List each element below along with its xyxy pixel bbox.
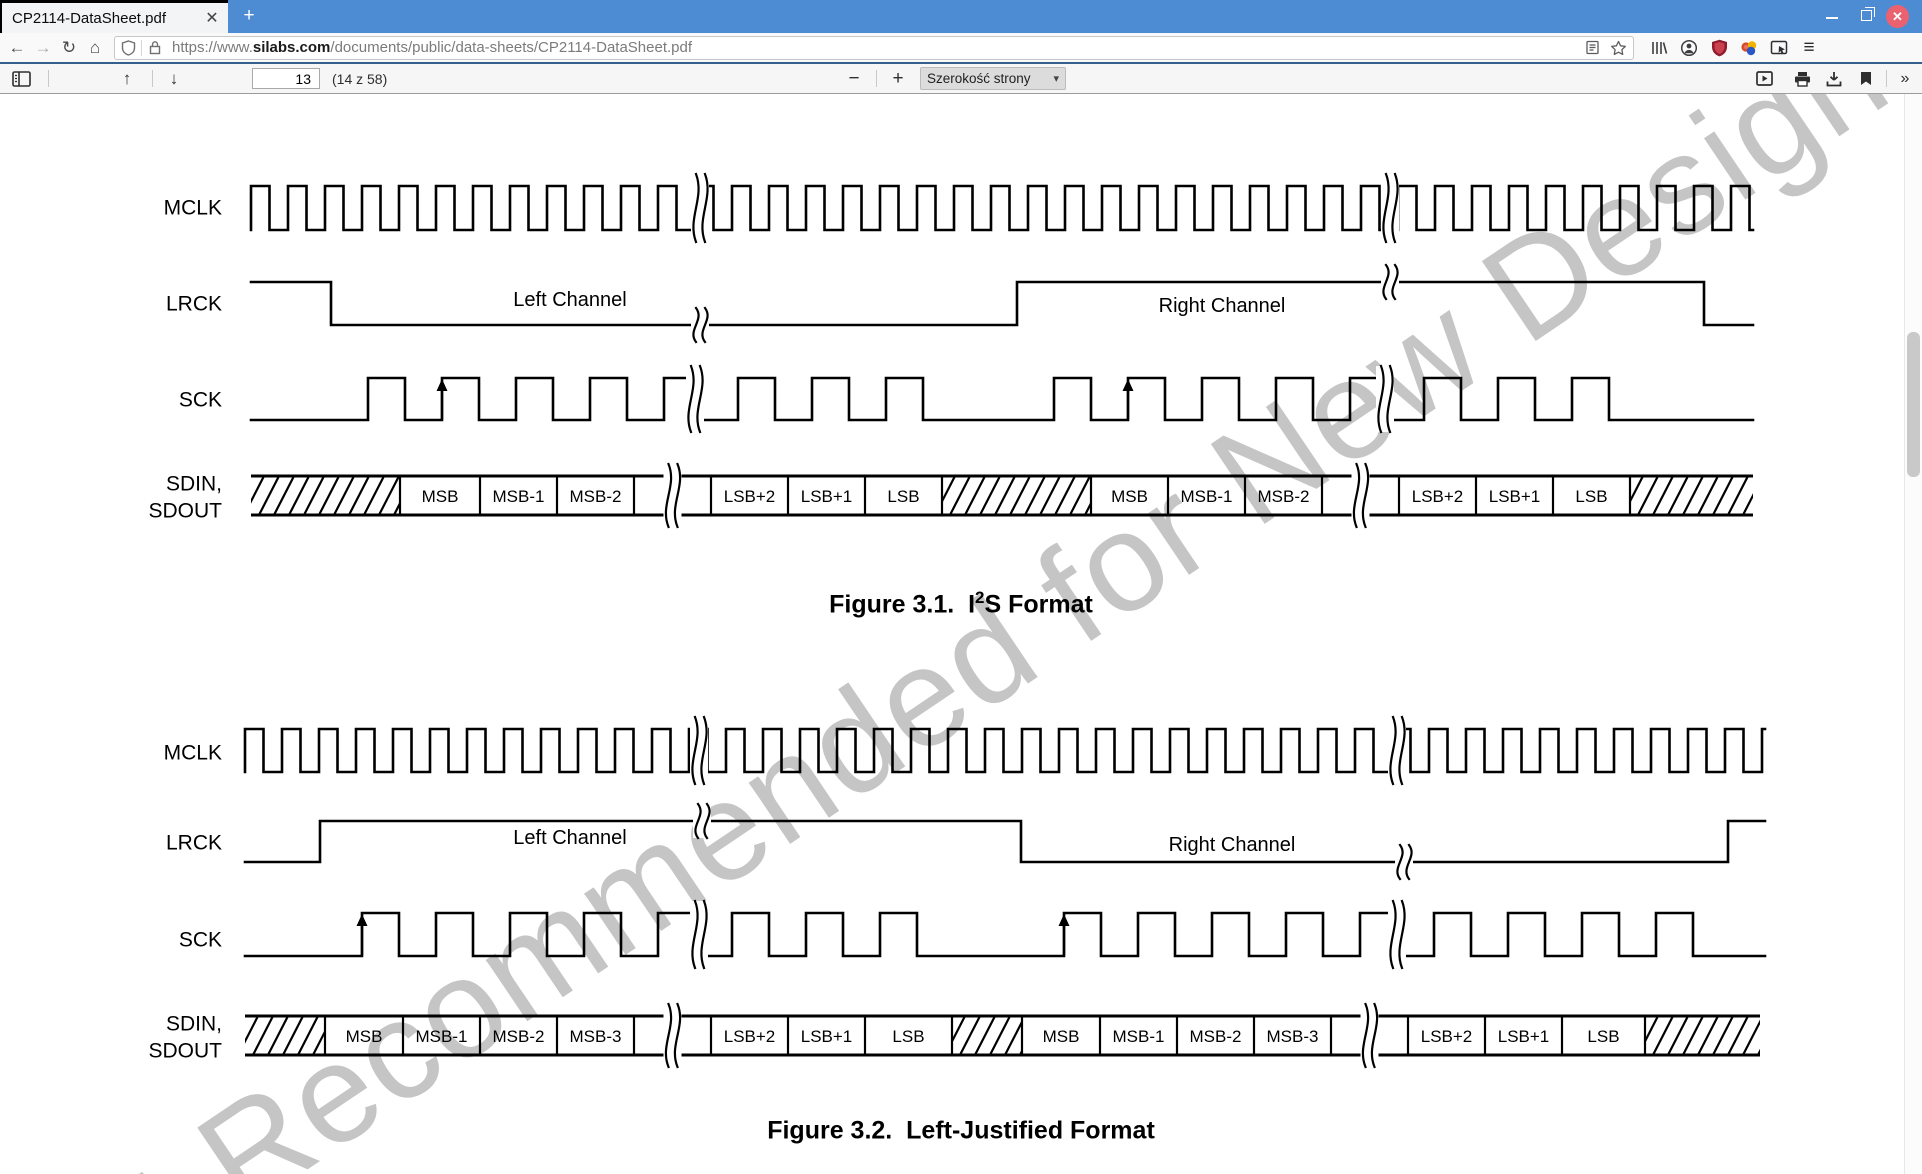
signal-label-mclk: MCLK <box>164 197 222 220</box>
data-cell-label: MSB-2 <box>1258 487 1310 506</box>
data-cell-label: MSB-1 <box>1113 1027 1165 1046</box>
data-cell-label: MSB-2 <box>493 1027 545 1046</box>
page-count-label: (14 z 58) <box>332 71 387 87</box>
pdf-page: Not Recommended for New Designs MCLKLRCK… <box>0 94 1922 1174</box>
lock-icon[interactable] <box>142 37 168 59</box>
data-cell-label: MSB-2 <box>1190 1027 1242 1046</box>
data-cell-label: MSB-2 <box>570 487 622 506</box>
figure-3-2-caption: Figure 3.2. Left-Justified Format <box>0 1114 1922 1145</box>
data-cell-label: LSB+2 <box>724 487 776 506</box>
previous-page-button[interactable]: ↑ <box>113 64 141 93</box>
data-cell-label: LSB+1 <box>1498 1027 1550 1046</box>
url-domain: silabs.com <box>253 39 331 56</box>
browser-tab[interactable]: CP2114-DataSheet.pdf ✕ <box>2 0 228 33</box>
data-cell-label: LSB <box>1587 1027 1619 1046</box>
data-cell-label: LSB+1 <box>1489 487 1541 506</box>
forward-button[interactable]: → <box>30 36 56 60</box>
data-cell-label: MSB-3 <box>570 1027 622 1046</box>
data-cell-label: MSB-3 <box>1267 1027 1319 1046</box>
bookmark-current-view-icon[interactable] <box>1852 64 1880 93</box>
zoom-select[interactable]: Szerokość strony ▾ <box>920 67 1066 90</box>
toolbar-separator <box>1886 70 1887 87</box>
data-cell-label: LSB <box>887 487 919 506</box>
title-bar: CP2114-DataSheet.pdf ✕ + ✕ <box>0 0 1922 33</box>
ublock-shield-icon[interactable] <box>1704 36 1734 60</box>
data-cell-label: LSB+1 <box>801 487 853 506</box>
signal-label-sdin: SDIN, <box>166 1013 222 1036</box>
data-cell-label: MSB-1 <box>416 1027 468 1046</box>
pdf-toolbar: ↑ ↓ (14 z 58) − + Szerokość strony ▾ » <box>0 64 1922 94</box>
back-button[interactable]: ← <box>4 36 30 60</box>
data-cell-label: MSB <box>422 487 459 506</box>
navbar-right-icons: ≡ <box>1644 36 1824 60</box>
new-tab-button[interactable]: + <box>236 3 262 29</box>
page-tools-icon[interactable] <box>1764 36 1794 60</box>
library-icon[interactable] <box>1644 36 1674 60</box>
home-button[interactable]: ⌂ <box>82 36 108 60</box>
data-cell-label: LSB+2 <box>1412 487 1464 506</box>
data-cell-label: LSB+2 <box>724 1027 776 1046</box>
download-icon[interactable] <box>1820 64 1848 93</box>
presentation-mode-icon[interactable] <box>1750 64 1778 93</box>
signal-label-mclk: MCLK <box>164 742 222 765</box>
signal-label-lrck: LRCK <box>166 832 222 855</box>
scrollbar-thumb[interactable] <box>1907 332 1920 477</box>
data-cell-label: MSB-1 <box>1181 487 1233 506</box>
extension-balls-icon[interactable] <box>1734 36 1764 60</box>
window-minimize-button[interactable] <box>1817 0 1847 33</box>
signal-label-sdout: SDOUT <box>149 1040 223 1063</box>
data-cell-label: MSB <box>1043 1027 1080 1046</box>
data-cell-label: LSB <box>892 1027 924 1046</box>
reader-mode-icon[interactable] <box>1579 37 1605 59</box>
channel-label: Right Channel <box>1169 834 1296 856</box>
zoom-in-button[interactable]: + <box>884 64 912 93</box>
signal-label-sdin: SDIN, <box>166 473 222 496</box>
bookmark-star-icon[interactable] <box>1605 37 1631 59</box>
reload-button[interactable]: ↻ <box>56 36 82 60</box>
sidebar-toggle-icon[interactable] <box>6 64 36 93</box>
menu-icon[interactable]: ≡ <box>1794 36 1824 60</box>
account-icon[interactable] <box>1674 36 1704 60</box>
signal-label-sdout: SDOUT <box>149 500 223 523</box>
zoom-out-button[interactable]: − <box>840 64 868 93</box>
next-page-button[interactable]: ↓ <box>160 64 188 93</box>
timing-diagrams: MCLKLRCKLeft ChannelRight ChannelSCKSDIN… <box>0 94 1922 1174</box>
window-close-button[interactable]: ✕ <box>1886 5 1909 28</box>
toolbar-separator <box>48 70 49 87</box>
data-cell-label: LSB+2 <box>1421 1027 1473 1046</box>
figure-3-1-caption: Figure 3.1. I2S Format <box>0 588 1922 619</box>
channel-label: Left Channel <box>513 827 626 849</box>
channel-label: Left Channel <box>513 289 626 311</box>
more-tools-button[interactable]: » <box>1892 64 1918 93</box>
print-icon[interactable] <box>1788 64 1816 93</box>
toolbar-separator <box>876 70 877 87</box>
data-cell-label: MSB <box>346 1027 383 1046</box>
tab-title: CP2114-DataSheet.pdf <box>2 10 201 27</box>
signal-label-sck: SCK <box>179 929 222 952</box>
data-cell-label: MSB <box>1111 487 1148 506</box>
navigation-bar: ← → ↻ ⌂ https://www.silabs.com/documents… <box>0 33 1922 64</box>
tracking-shield-icon[interactable] <box>115 37 141 59</box>
window-restore-button[interactable] <box>1852 0 1882 33</box>
url-text: https://www.silabs.com/documents/public/… <box>172 39 1579 56</box>
data-cell-label: MSB-1 <box>493 487 545 506</box>
page-number-input[interactable] <box>252 68 320 89</box>
url-bar[interactable]: https://www.silabs.com/documents/public/… <box>114 36 1634 60</box>
chevron-down-icon: ▾ <box>1053 72 1059 85</box>
page-scrollbar[interactable] <box>1904 94 1922 1174</box>
tab-close-icon[interactable]: ✕ <box>201 7 223 29</box>
signal-label-lrck: LRCK <box>166 293 222 316</box>
signal-label-sck: SCK <box>179 389 222 412</box>
zoom-select-label: Szerokość strony <box>927 71 1031 86</box>
data-cell-label: LSB <box>1575 487 1607 506</box>
channel-label: Right Channel <box>1159 295 1286 317</box>
data-cell-label: LSB+1 <box>801 1027 853 1046</box>
toolbar-separator <box>152 70 153 87</box>
